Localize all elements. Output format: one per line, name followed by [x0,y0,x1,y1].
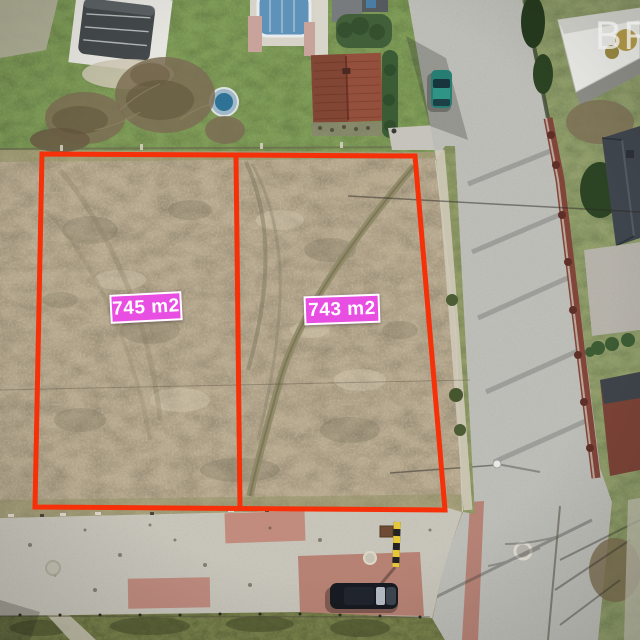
plot-divider-line [236,154,240,510]
aerial-photo: 745 m2 743 m2 BR [0,0,640,640]
watermark-text: BR [595,14,640,59]
plot-right-area-label: 743 m2 [304,294,381,326]
plot-left-area-label: 745 m2 [109,291,182,324]
